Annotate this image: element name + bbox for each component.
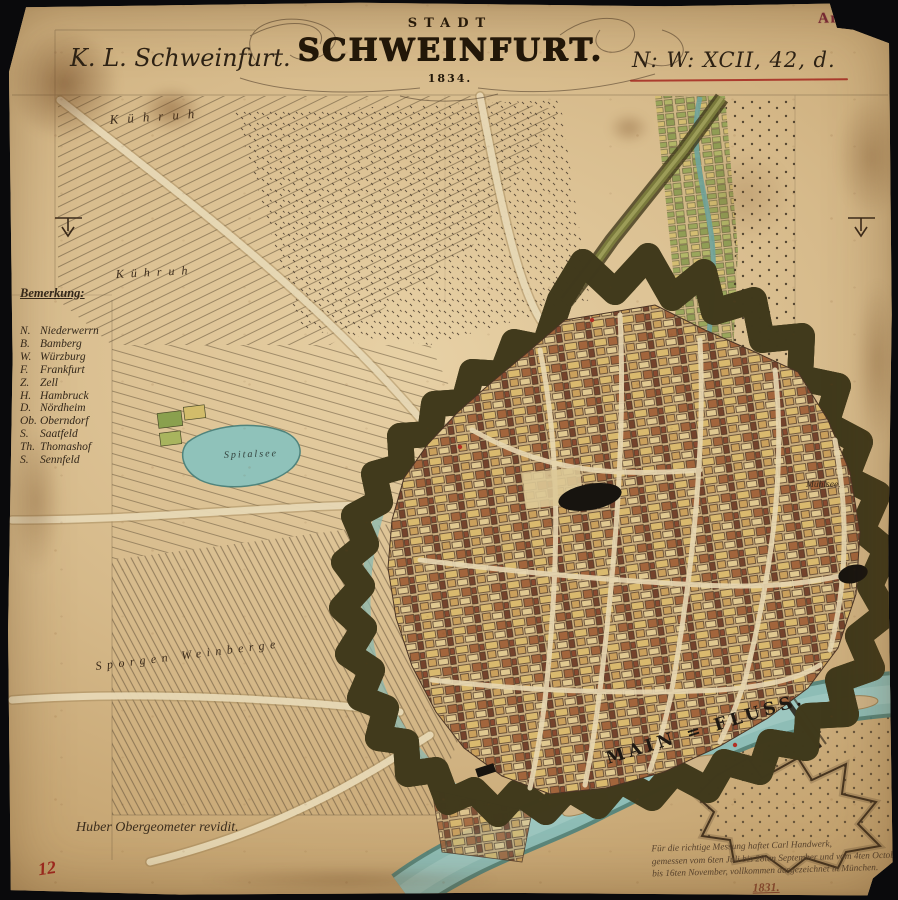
legend-abbr: S.	[20, 428, 40, 441]
legend-name: Sennfeld	[40, 454, 80, 466]
legend-abbr: S.	[20, 454, 40, 467]
legend-abbr: H.	[20, 390, 40, 403]
legend-name: Bamberg	[40, 338, 82, 350]
legend-abbr: B.	[20, 338, 40, 351]
riverside-building	[475, 763, 496, 777]
legend-name: Thomashof	[40, 441, 91, 453]
map-drawing: Kühruh Kühruh Spitalsee Mühlsee. Sporgen…	[0, 0, 898, 900]
title-year: 1834.	[285, 72, 615, 85]
legend-entry: F.Frankfurt	[20, 364, 120, 377]
legend-entry: S.Saatfeld	[20, 428, 120, 441]
legend-name: Zell	[40, 377, 58, 389]
inventory-number: 12	[37, 857, 58, 880]
surveyor-note: Huber Obergeometer revidit.	[76, 820, 239, 836]
legend-abbr: F.	[20, 364, 40, 377]
legend-entry: Th.Thomashof	[20, 441, 120, 454]
photo-background: Kühruh Kühruh Spitalsee Mühlsee. Sporgen…	[0, 0, 898, 900]
archive-stamp: Archiv	[818, 9, 871, 28]
legend-name: Saatfeld	[40, 428, 78, 440]
legend-abbr: Th.	[20, 441, 40, 454]
collection-label: K. L. Schweinfurt.	[70, 44, 291, 72]
legend-name: Würzburg	[40, 351, 86, 363]
title-kicker: STADT	[285, 16, 615, 31]
legend-abbr: N.	[20, 325, 40, 338]
spitalsee-label: Spitalsee	[224, 448, 278, 461]
orientation-arrow-east	[848, 218, 875, 236]
title-cartouche: STADT SCHWEINFURT. 1834.	[285, 16, 615, 85]
legend-abbr: D.	[20, 402, 40, 415]
legend-name: Hambruck	[40, 390, 89, 402]
legend-entry: W.Würzburg	[20, 351, 120, 364]
legend-entry: H.Hambruck	[20, 390, 120, 403]
legend-entry: D.Nördheim	[20, 402, 120, 415]
legend-name: Oberndorf	[40, 415, 89, 427]
legend-abbr: W.	[20, 351, 40, 364]
legend-entry: Z.Zell	[20, 377, 120, 390]
legend-entry: Ob.Oberndorf	[20, 415, 120, 428]
legend-panel: Bemerkung: N.Niederwerrn B.Bamberg W.Wür…	[20, 286, 120, 467]
map-title: SCHWEINFURT.	[285, 32, 615, 68]
legend-name: Nördheim	[40, 402, 86, 414]
map-sheet-paper: Kühruh Kühruh Spitalsee Mühlsee. Sporgen…	[0, 0, 898, 900]
certification-note: Für die richtige Messung haftet Carl Han…	[651, 837, 897, 899]
sheet-signature: N: W: XCII, 42, d.	[632, 48, 836, 72]
legend-abbr: Ob.	[20, 415, 40, 428]
legend-name: Frankfurt	[40, 364, 85, 376]
legend-entry: N.Niederwerrn	[20, 325, 120, 338]
muehlsee-label: Mühlsee.	[805, 480, 841, 490]
legend-name: Niederwerrn	[40, 325, 99, 337]
legend-entry: S.Sennfeld	[20, 454, 120, 467]
legend-abbr: Z.	[20, 377, 40, 390]
legend-entry: B.Bamberg	[20, 338, 120, 351]
certification-date: 1831.	[752, 881, 779, 894]
legend-heading: Bemerkung:	[20, 286, 120, 301]
